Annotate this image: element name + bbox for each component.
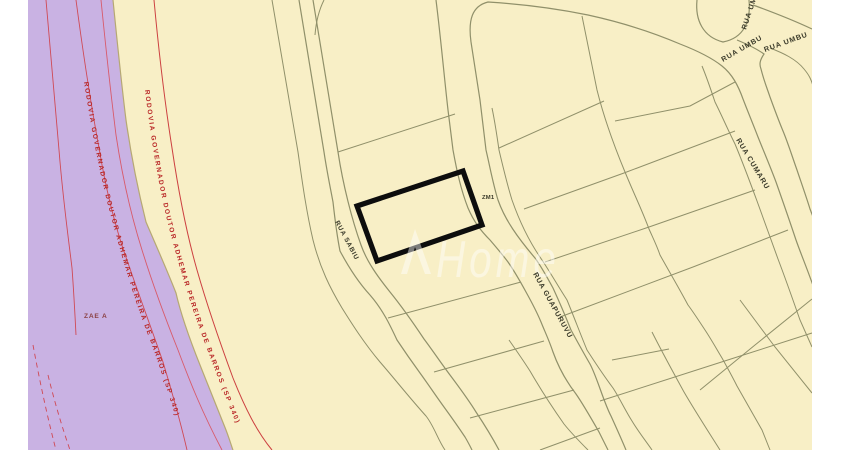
svg-text:ZAE A: ZAE A (84, 313, 108, 320)
svg-text:ZM1: ZM1 (482, 195, 495, 201)
